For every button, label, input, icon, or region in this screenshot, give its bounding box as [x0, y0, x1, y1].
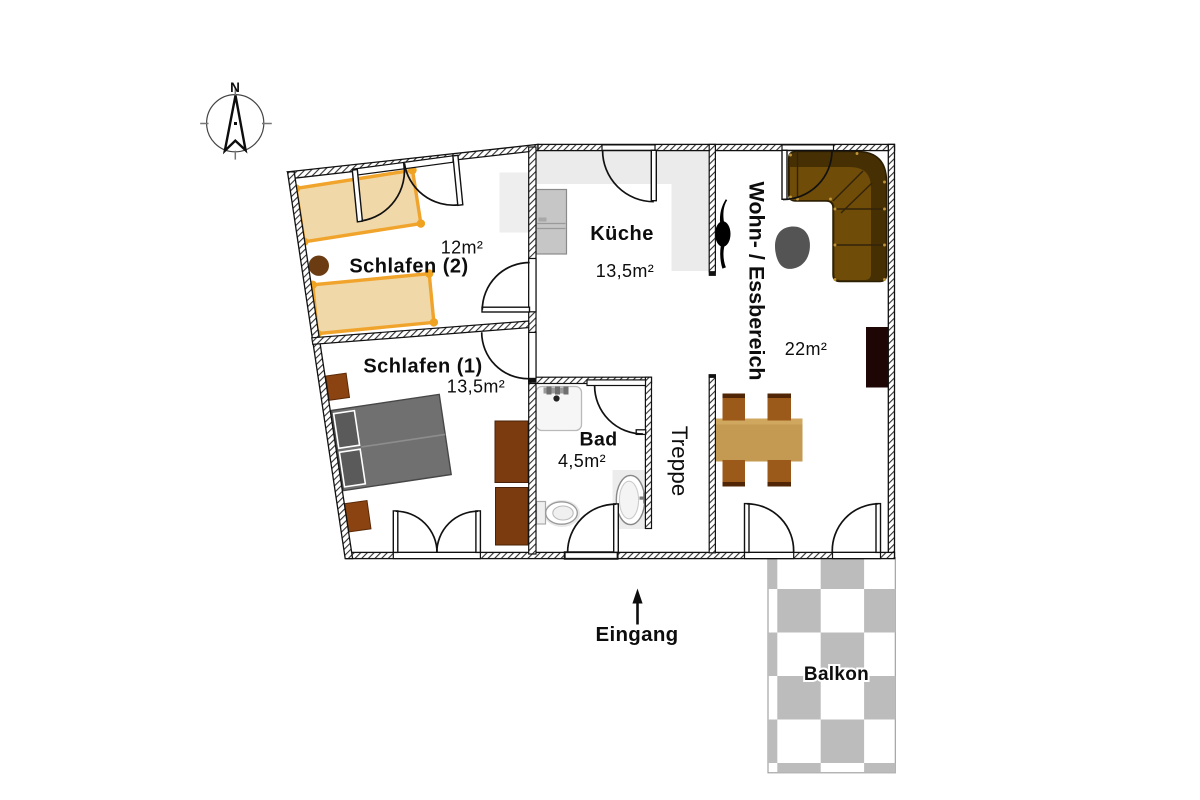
svg-text:13,5m²: 13,5m²: [447, 377, 505, 397]
svg-text:Küche: Küche: [590, 223, 654, 245]
svg-text:Schlafen (1): Schlafen (1): [363, 356, 482, 378]
svg-text:Balkon: Balkon: [804, 664, 869, 685]
svg-text:4,5m²: 4,5m²: [558, 451, 606, 471]
svg-text:12m²: 12m²: [441, 238, 484, 258]
svg-text:Treppe: Treppe: [667, 426, 692, 496]
svg-text:13,5m²: 13,5m²: [596, 261, 654, 281]
svg-text:22m²: 22m²: [785, 339, 828, 359]
svg-text:Bad: Bad: [579, 429, 617, 451]
svg-text:Eingang: Eingang: [596, 623, 679, 646]
svg-text:N: N: [230, 80, 240, 95]
svg-text:Schlafen (2): Schlafen (2): [349, 256, 468, 278]
svg-text:Wohn- / Essbereich: Wohn- / Essbereich: [744, 181, 768, 380]
